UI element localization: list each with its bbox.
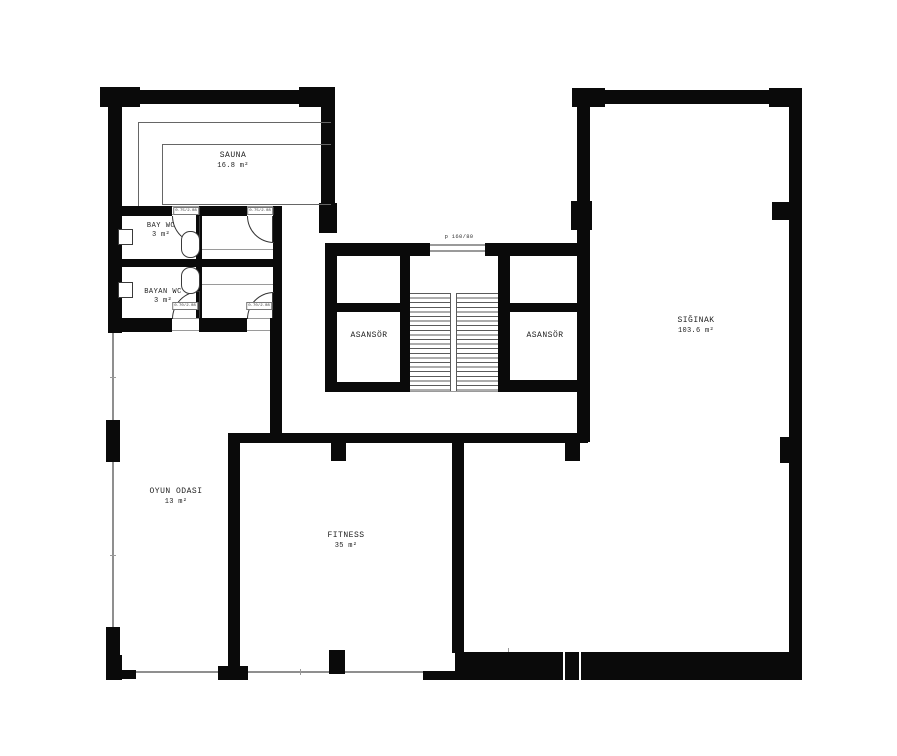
column-pad xyxy=(218,666,248,680)
wall-segment xyxy=(108,318,172,332)
wall-segment xyxy=(789,90,802,660)
stall-partition xyxy=(202,249,273,250)
door-arc xyxy=(247,216,274,243)
room-name: BAY WC xyxy=(147,222,175,230)
floor-plan: p 160/80 SAUNA 16.8 m² BAY WC 3 m² BAYAN… xyxy=(0,0,897,756)
room-label-siginak: SIĞINAK 103.6 m² xyxy=(677,316,714,336)
wall-segment xyxy=(106,670,136,679)
column-pad xyxy=(106,627,120,657)
room-area: 103.6 m² xyxy=(677,327,714,336)
door-size-label: 0.70/2.08 xyxy=(246,302,272,310)
door-leaf xyxy=(272,216,273,242)
room-area: 3 m² xyxy=(147,231,175,240)
wall-segment xyxy=(228,443,240,673)
door-size-label: 0.75/2.08 xyxy=(173,207,199,215)
wall-segment xyxy=(270,318,282,433)
room-label-oyun-odasi: OYUN ODASI 13 m² xyxy=(149,487,202,507)
room-name: SAUNA xyxy=(220,151,247,160)
washbasin xyxy=(118,282,133,298)
window-line xyxy=(112,333,114,673)
column-pad xyxy=(329,650,345,674)
room-area: 35 m² xyxy=(327,542,364,551)
wall-segment xyxy=(337,303,400,312)
wall-segment xyxy=(199,318,247,332)
room-name: ASANSÖR xyxy=(350,331,387,340)
wall-segment xyxy=(273,206,282,332)
door-size-label: 0.75/2.08 xyxy=(247,207,273,215)
room-label-fitness: FITNESS 35 m² xyxy=(327,531,364,551)
room-label-asansor-right: ASANSÖR xyxy=(526,331,563,342)
window-tick xyxy=(110,555,116,556)
column-pad xyxy=(772,202,802,220)
door-sill xyxy=(172,330,199,331)
wall-segment xyxy=(452,443,464,653)
wall-segment xyxy=(108,259,282,267)
door-leaf xyxy=(272,292,273,318)
stair-landing-edge xyxy=(410,391,498,392)
wall-segment xyxy=(325,243,430,256)
window-tick xyxy=(300,669,301,675)
room-name: OYUN ODASI xyxy=(149,487,202,496)
column-pad xyxy=(563,652,581,680)
wall-segment xyxy=(510,303,577,312)
room-label-sauna: SAUNA 16.8 m² xyxy=(217,151,249,171)
door-size-label: 0.70/2.08 xyxy=(172,302,198,310)
column-pad xyxy=(780,437,802,463)
toilet xyxy=(181,267,200,294)
passage-label: p 160/80 xyxy=(445,233,474,240)
wall-segment xyxy=(325,243,337,392)
column-pad xyxy=(319,203,337,233)
room-area: 13 m² xyxy=(149,498,202,507)
wall-segment xyxy=(325,382,410,392)
column-pad xyxy=(106,420,120,462)
room-name: ASANSÖR xyxy=(526,331,563,340)
column-pad xyxy=(331,433,346,461)
washbasin xyxy=(118,229,133,245)
room-label-bay-wc: BAY WC 3 m² xyxy=(147,222,175,241)
toilet xyxy=(181,231,200,258)
column-pad xyxy=(565,433,580,461)
room-name: SIĞINAK xyxy=(677,316,714,325)
wall-segment xyxy=(498,256,510,392)
wall-segment xyxy=(228,433,588,443)
wall-segment xyxy=(455,652,802,680)
wall-segment xyxy=(400,256,410,392)
staircase-divider xyxy=(450,293,457,392)
wall-segment xyxy=(108,206,172,216)
door-leaf xyxy=(199,291,200,318)
wall-segment xyxy=(577,90,590,442)
passage-sill xyxy=(430,250,485,252)
stall-partition xyxy=(202,284,273,285)
wall-segment xyxy=(199,206,247,216)
room-area: 16.8 m² xyxy=(217,162,249,171)
room-name: BAYAN WC xyxy=(144,288,182,296)
window-line xyxy=(112,671,455,673)
wall-segment xyxy=(423,671,457,680)
room-name: FITNESS xyxy=(327,531,364,540)
window-tick xyxy=(110,377,116,378)
wall-segment xyxy=(485,243,590,256)
column-pad xyxy=(571,201,592,230)
room-label-asansor-left: ASANSÖR xyxy=(350,331,387,342)
passage-sill xyxy=(430,244,485,246)
